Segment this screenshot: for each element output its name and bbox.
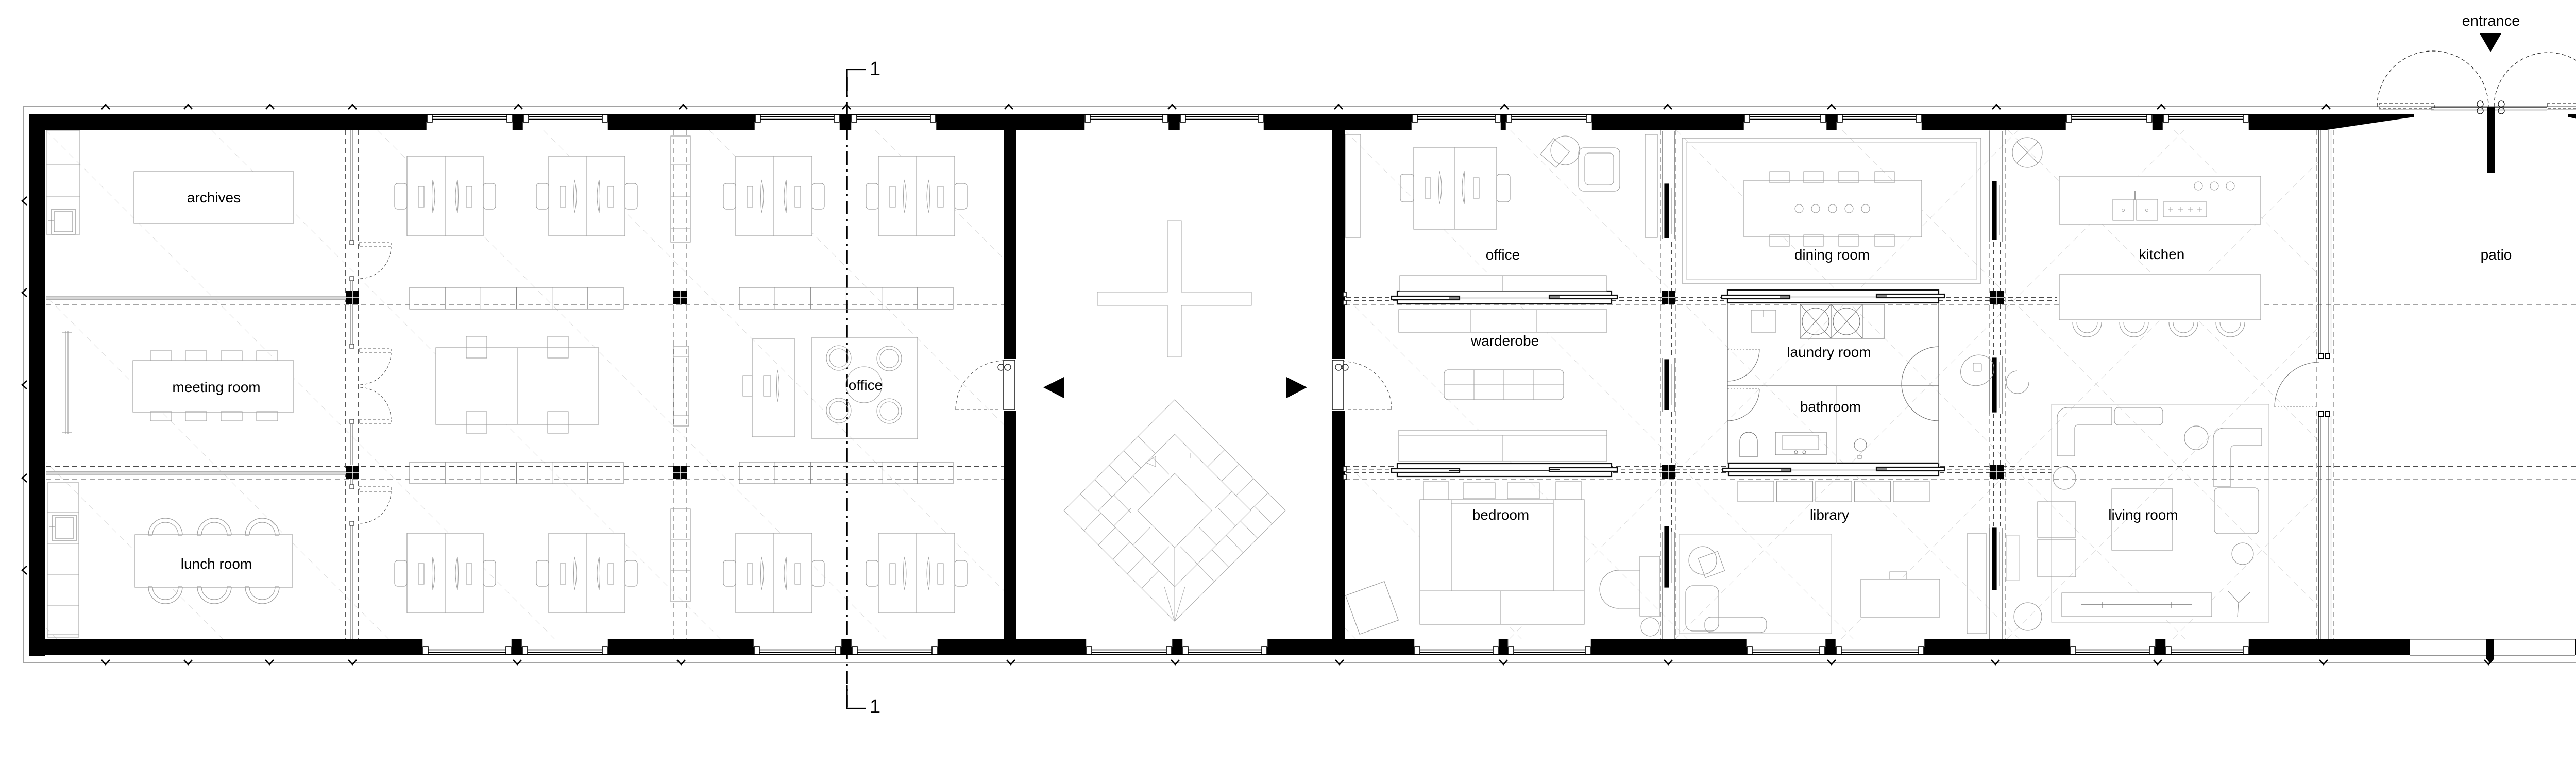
svg-text:bedroom: bedroom [1472,507,1530,523]
svg-text:1: 1 [870,696,880,718]
svg-text:office: office [849,377,883,393]
svg-text:lunch room: lunch room [181,556,252,572]
svg-text:laundry room: laundry room [1787,344,1871,360]
svg-text:dining room: dining room [1794,247,1870,263]
svg-text:warderobe: warderobe [1470,333,1539,349]
svg-text:entrance: entrance [2462,13,2520,29]
svg-text:1: 1 [870,58,880,80]
svg-text:living room: living room [2108,507,2178,523]
svg-text:meeting room: meeting room [172,379,260,395]
svg-text:kitchen: kitchen [2139,246,2185,262]
svg-text:archives: archives [187,190,241,206]
svg-text:library: library [1810,507,1849,523]
svg-text:bathroom: bathroom [1800,399,1861,415]
svg-text:patio: patio [2481,247,2512,263]
svg-text:office: office [1486,247,1520,263]
